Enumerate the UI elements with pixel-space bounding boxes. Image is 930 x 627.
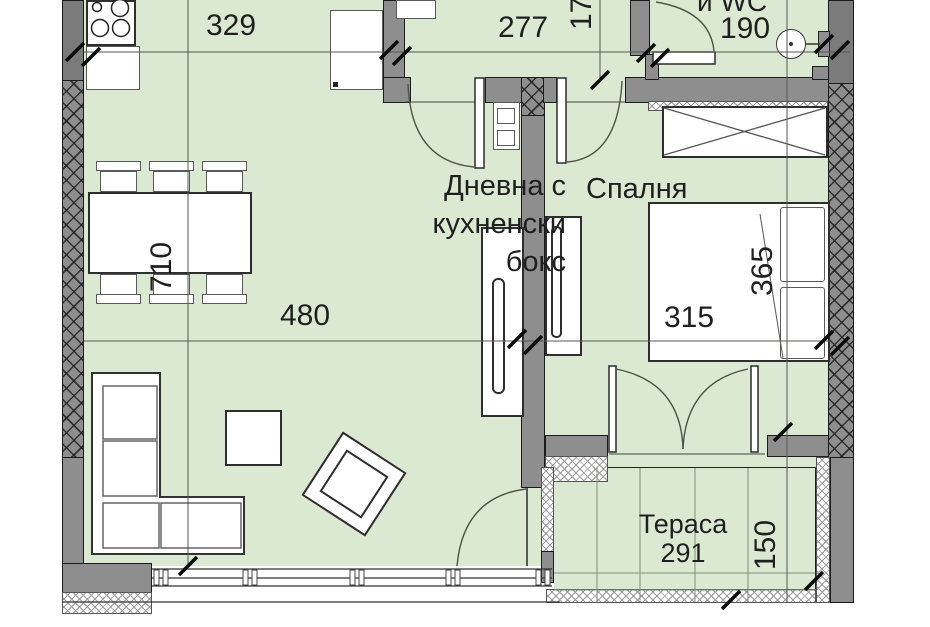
dim-dining-length: 710 bbox=[146, 224, 178, 292]
wardrobe-cross bbox=[664, 108, 825, 155]
terrace-width-dim: 291 bbox=[616, 539, 750, 568]
dim-hall-width: 277 bbox=[498, 12, 548, 44]
sofa bbox=[92, 373, 244, 554]
terrace-label-block: Тераса 291 bbox=[616, 510, 750, 568]
bedroom-label: Спалня bbox=[586, 170, 687, 208]
living-room-label-line2: кухненски bbox=[318, 205, 566, 243]
dim-bedroom-depth: 365 bbox=[747, 230, 779, 296]
living-room-label-line3: бокс bbox=[318, 243, 566, 281]
door-arcs bbox=[408, 2, 748, 566]
floor-plan: Дневна с кухненски бокс Спалня Тераса 29… bbox=[0, 0, 930, 627]
dim-bathroom-width: 190 bbox=[720, 13, 770, 45]
dim-kitchen-width: 329 bbox=[206, 10, 256, 42]
living-room-label-line1: Дневна с bbox=[318, 167, 566, 205]
terrace-label: Тераса bbox=[616, 510, 750, 539]
door-leaves bbox=[475, 52, 758, 566]
cooktop-burners bbox=[92, 0, 130, 37]
dim-hall-depth: 170 bbox=[566, 0, 598, 30]
dim-bed-width: 315 bbox=[664, 302, 714, 334]
living-room-label: Дневна с кухненски бокс bbox=[318, 167, 566, 281]
dim-living-width: 480 bbox=[280, 300, 330, 332]
window-bottom bbox=[62, 569, 560, 602]
dim-terrace-depth: 150 bbox=[750, 506, 782, 570]
plan-linework bbox=[0, 0, 930, 627]
